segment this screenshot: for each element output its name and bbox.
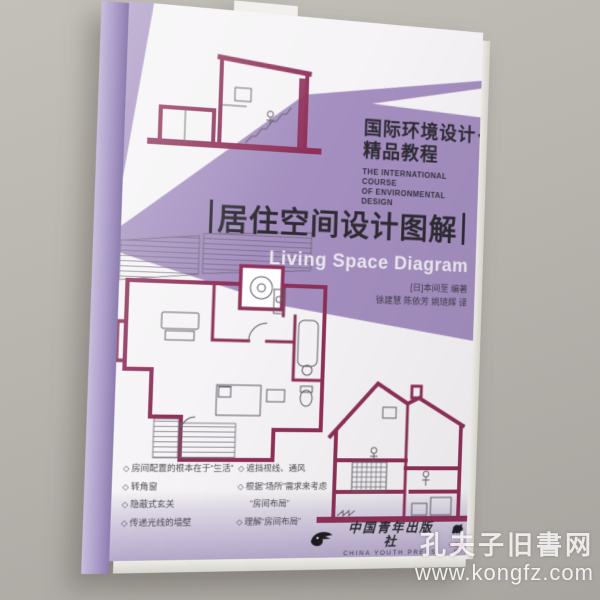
book: 国际环境设计 精品教程 THE INTERNATIONAL COURSE OF … bbox=[81, 0, 490, 574]
bullet-item: ◇根据“场所”需求来考虑 bbox=[237, 478, 346, 496]
bullet-item: ◇转角窗 bbox=[122, 478, 238, 496]
book-front-cover: 国际环境设计 精品教程 THE INTERNATIONAL COURSE OF … bbox=[109, 1, 483, 561]
title-right-bar bbox=[462, 212, 466, 244]
feature-list-left: ◇房间配置的根本在于“生活”◇转角窗◇隐蔽式玄关◇传递光线的墙壁 bbox=[121, 460, 239, 532]
watermark-site-name: 孔夫子旧書网 bbox=[415, 532, 594, 560]
publisher-eagle-logo-icon bbox=[309, 530, 334, 550]
credits-block: [日]本间至 编著 徐建慧 陈依芳 姚琏辉 译 bbox=[375, 279, 467, 310]
bullet-item: ◇传递光线的墙壁 bbox=[121, 513, 237, 532]
bullet-item: ◇房间配置的根本在于“生活” bbox=[123, 460, 239, 478]
section-drawing-top bbox=[146, 19, 326, 175]
feature-list-right: ◇遮挡视线、通风◇根据“场所”需求来考虑“房间布局”◇理解“房间布局” bbox=[236, 460, 347, 531]
title-left-bar bbox=[209, 199, 213, 233]
series-title-block: 国际环境设计 精品教程 THE INTERNATIONAL COURSE OF … bbox=[361, 117, 480, 213]
corner-arrow-icon bbox=[476, 123, 483, 139]
watermark-site-url: www.kongfz.com bbox=[415, 560, 594, 586]
bullet-item: ◇隐蔽式玄关 bbox=[121, 495, 237, 514]
bullet-item: “房间布局” bbox=[237, 495, 346, 513]
photo-of-book: { "watermark": { "site_name": "孔夫子旧書网", … bbox=[0, 0, 600, 600]
bullet-item: ◇遮挡视线、通风 bbox=[238, 460, 347, 478]
site-watermark: 孔夫子旧書网 www.kongfz.com bbox=[415, 532, 594, 586]
